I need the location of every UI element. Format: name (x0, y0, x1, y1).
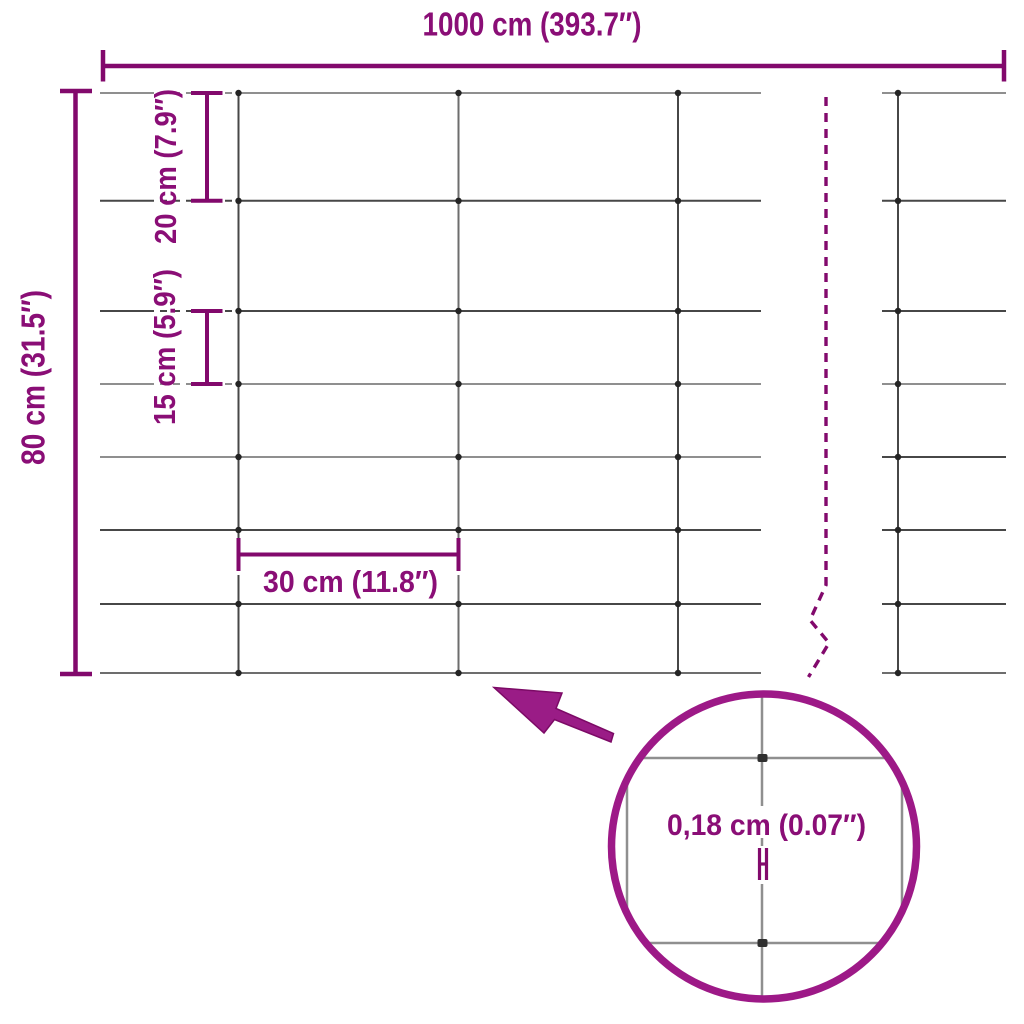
svg-text:30 cm (11.8″): 30 cm (11.8″) (263, 564, 438, 599)
svg-text:1000 cm (393.7″): 1000 cm (393.7″) (423, 6, 642, 43)
svg-text:0,18 cm (0.07″): 0,18 cm (0.07″) (667, 809, 866, 842)
svg-text:20 cm (7.9″): 20 cm (7.9″) (148, 89, 183, 244)
svg-text:80 cm (31.5″): 80 cm (31.5″) (15, 290, 52, 465)
svg-text:15 cm (5.9″): 15 cm (5.9″) (147, 269, 182, 425)
